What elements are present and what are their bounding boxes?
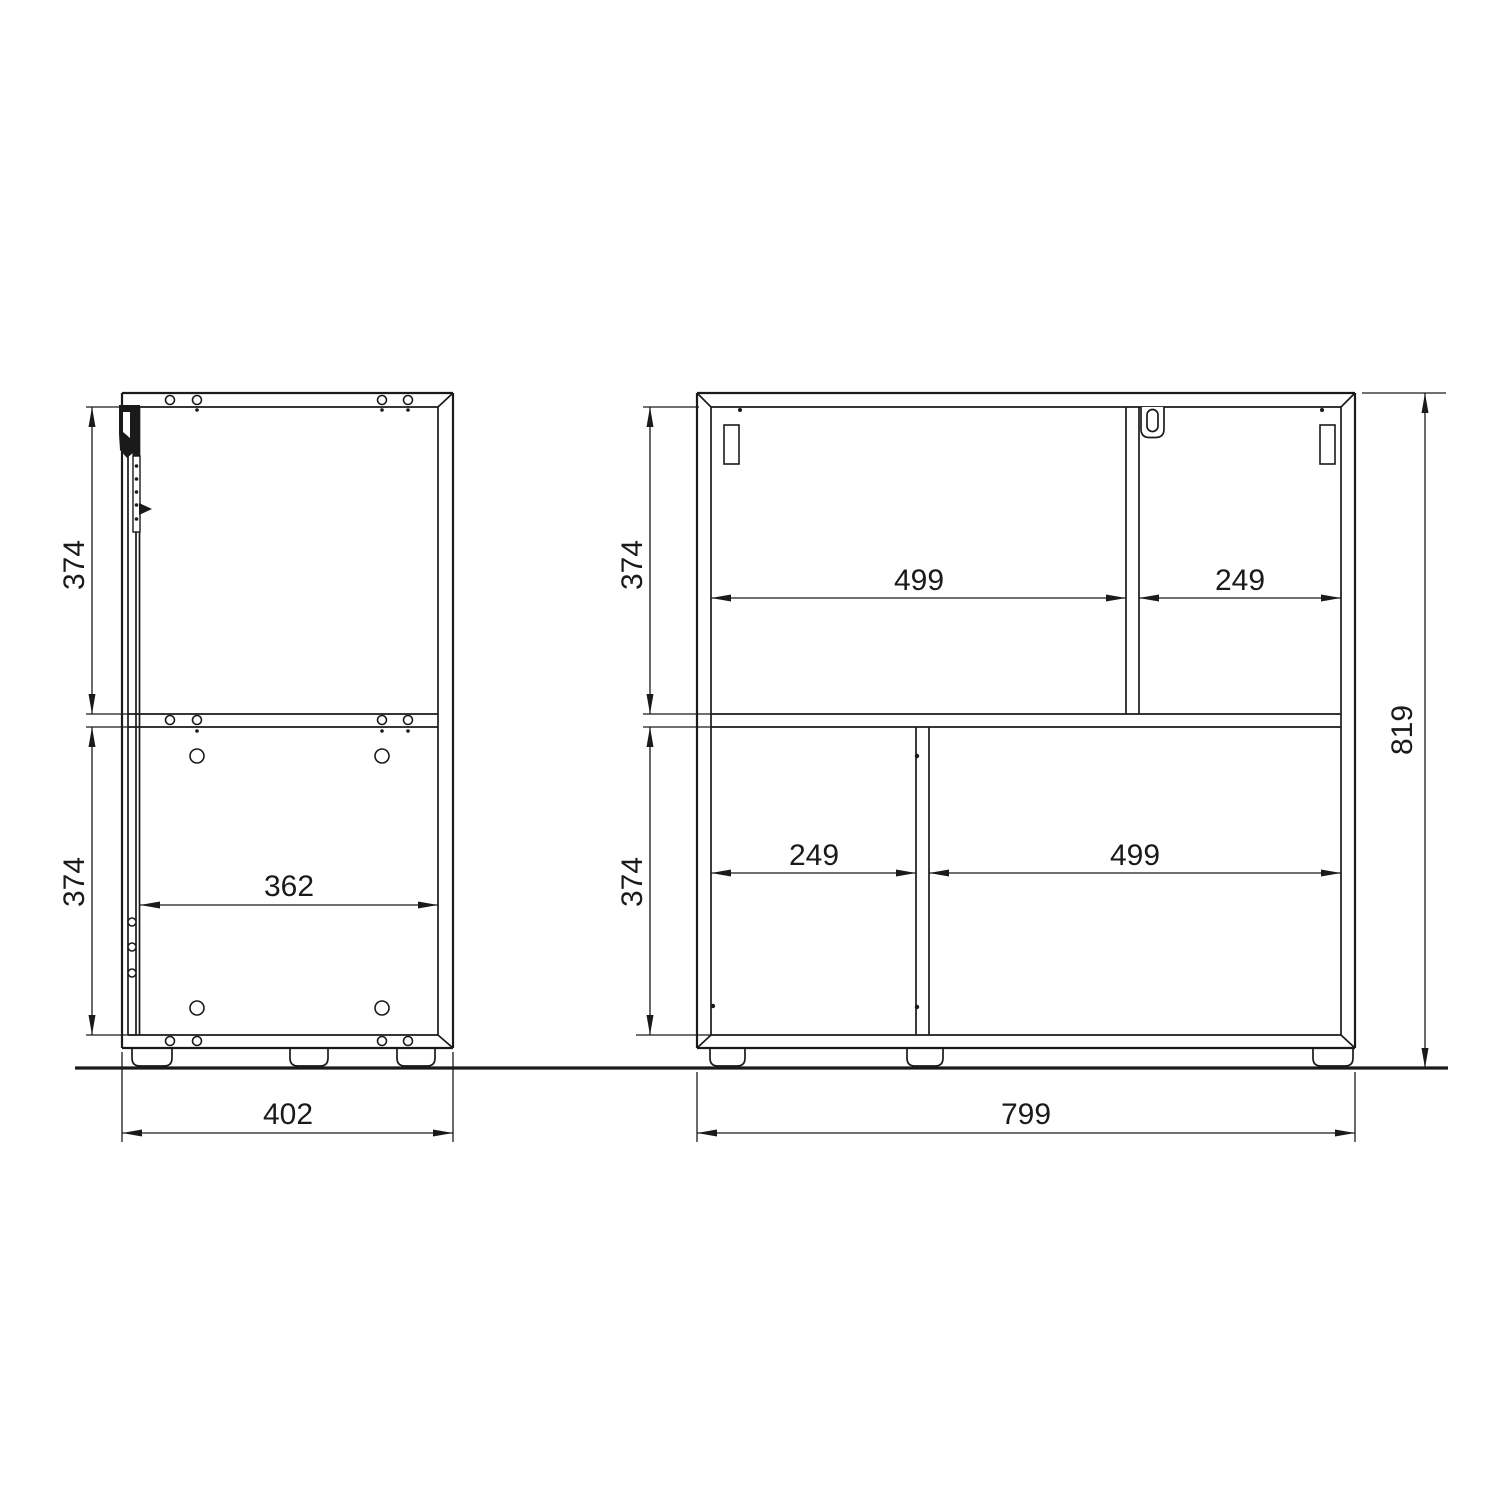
dim-side-interior-depth: 362 <box>140 870 438 909</box>
dim-side-upper-height: 374 <box>58 407 130 714</box>
right-wall-bracket <box>1320 425 1335 464</box>
dim-front-overall-width: 799 <box>697 1072 1355 1142</box>
dim-label-front-top-left-width: 499 <box>894 564 944 597</box>
front-view <box>697 393 1355 1066</box>
side-view-pin-holes <box>128 749 389 1015</box>
wall-mount-hardware <box>119 405 152 532</box>
wall-brackets <box>724 408 1335 464</box>
dim-label-front-upper-height: 374 <box>616 540 649 590</box>
dim-front-bottom-right-width: 499 <box>929 839 1341 877</box>
side-view <box>119 393 453 1066</box>
hardware-pointer <box>139 503 152 515</box>
dim-label-side-overall-depth: 402 <box>263 1098 313 1131</box>
dim-label-side-interior-depth: 362 <box>264 870 314 903</box>
dim-label-front-top-right-width: 249 <box>1215 564 1265 597</box>
left-wall-bracket <box>724 425 739 464</box>
dim-front-top-left-width: 499 <box>711 564 1126 602</box>
cabinet-dimension-drawing: 374 374 362 402 374 374 <box>0 0 1500 1500</box>
front-view-carcass <box>697 393 1355 1048</box>
side-view-screw-holes <box>166 396 413 1046</box>
dim-label-front-lower-height: 374 <box>616 857 649 907</box>
dim-label-front-overall-height: 819 <box>1386 705 1419 755</box>
technical-drawing-canvas: 374 374 362 402 374 374 <box>0 0 1500 1500</box>
keyhole-hanger <box>1141 407 1164 438</box>
side-view-feet <box>132 1048 435 1066</box>
front-view-pin-ticks <box>711 754 919 1009</box>
dim-label-front-bottom-right-width: 499 <box>1110 839 1160 872</box>
dim-label-side-lower-height: 374 <box>58 857 91 907</box>
dim-front-top-right-width: 249 <box>1139 564 1341 602</box>
dim-front-overall-height: 819 <box>1362 393 1446 1068</box>
dim-label-front-overall-width: 799 <box>1001 1098 1051 1131</box>
dim-front-bottom-left-width: 249 <box>711 839 916 877</box>
front-view-feet <box>710 1048 1353 1066</box>
dim-label-front-bottom-left-width: 249 <box>789 839 839 872</box>
dim-label-side-upper-height: 374 <box>58 540 91 590</box>
dim-side-lower-height: 374 <box>58 727 136 1035</box>
